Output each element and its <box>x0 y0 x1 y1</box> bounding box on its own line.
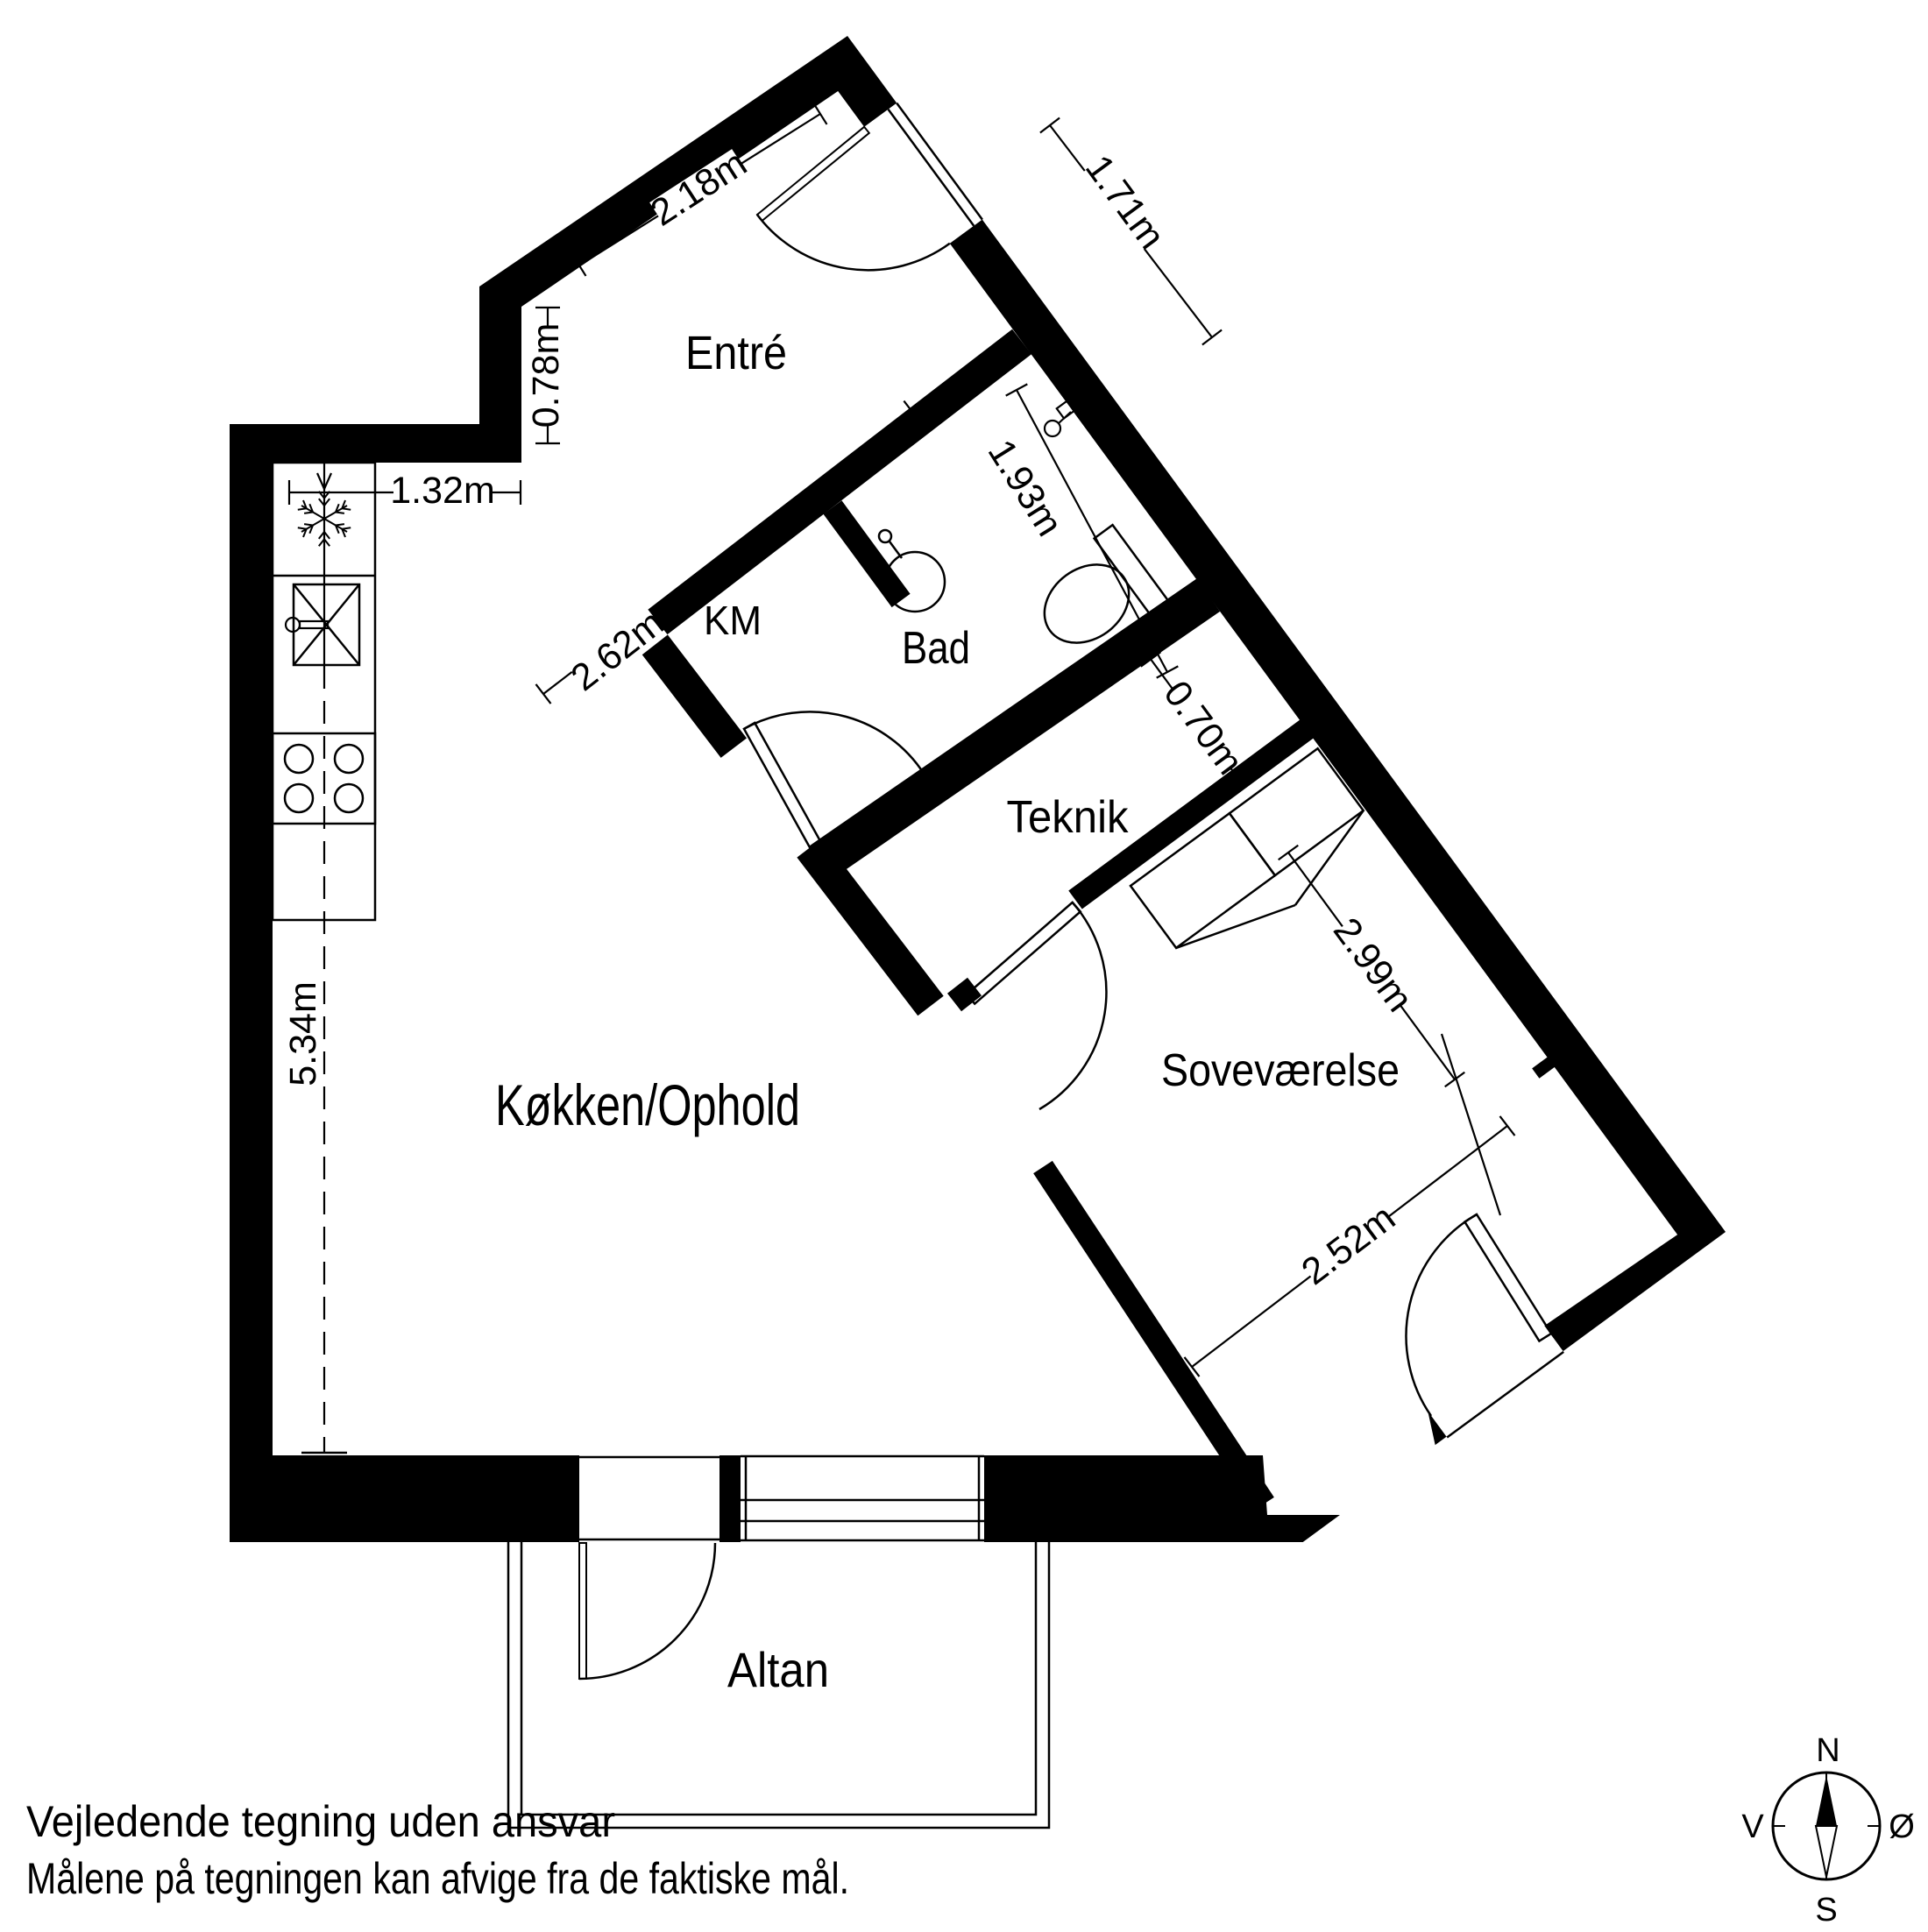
svg-text:Teknik: Teknik <box>1007 792 1130 843</box>
svg-text:Bad: Bad <box>902 623 970 674</box>
svg-text:1.32m: 1.32m <box>390 470 495 512</box>
svg-text:Målene på tegningen kan afvige: Målene på tegningen kan afvige fra de fa… <box>26 1854 849 1903</box>
svg-text:Altan: Altan <box>727 1642 829 1697</box>
svg-text:Ø: Ø <box>1889 1808 1915 1845</box>
svg-text:5.34m: 5.34m <box>282 981 324 1086</box>
svg-text:S: S <box>1815 1892 1837 1928</box>
svg-text:Entré: Entré <box>685 327 787 379</box>
svg-text:Soveværelse: Soveværelse <box>1161 1045 1400 1096</box>
svg-text:V: V <box>1741 1808 1764 1845</box>
svg-text:N: N <box>1816 1732 1839 1769</box>
svg-text:Vejledende tegning uden ansvar: Vejledende tegning uden ansvar <box>26 1797 615 1846</box>
svg-text:KM: KM <box>704 598 762 643</box>
svg-text:0.78m: 0.78m <box>525 323 567 428</box>
svg-text:Køkken/Ophold: Køkken/Ophold <box>495 1072 800 1137</box>
